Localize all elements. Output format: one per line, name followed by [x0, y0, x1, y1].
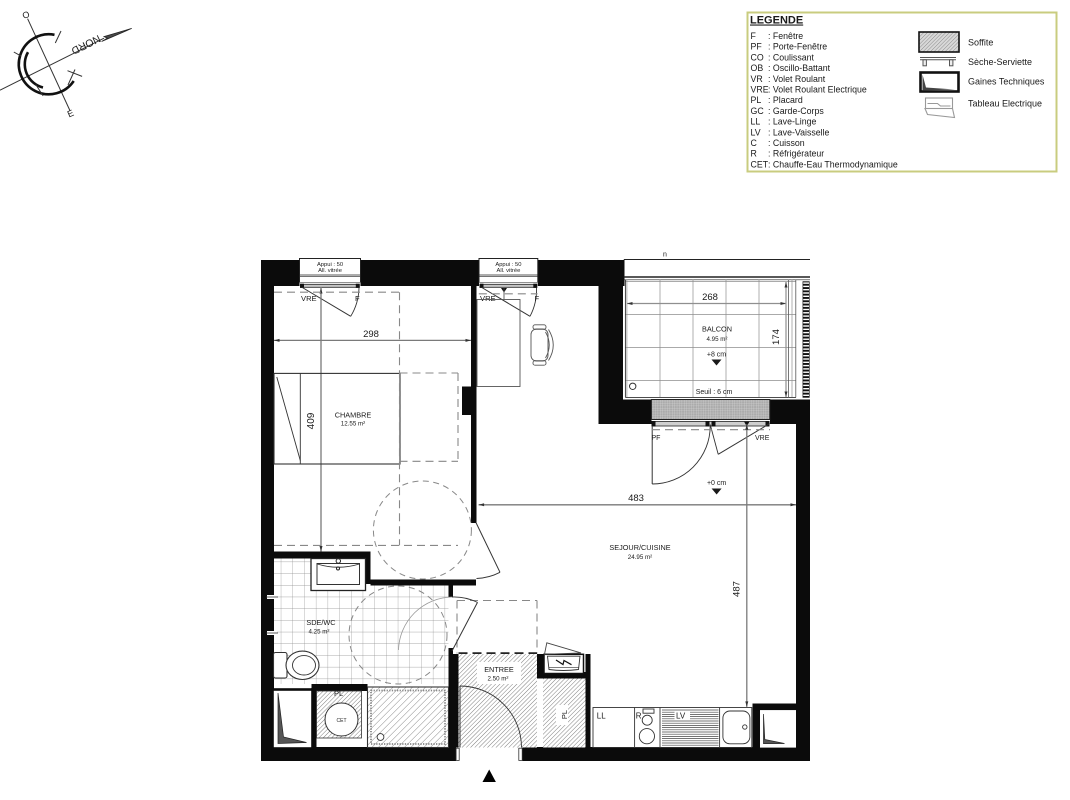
svg-text:: Volet Roulant Electrique: : Volet Roulant Electrique	[768, 85, 867, 95]
svg-text:: Porte-Fenêtre: : Porte-Fenêtre	[768, 42, 827, 52]
svg-text:F: F	[355, 294, 360, 303]
svg-text:: Cuisson: : Cuisson	[768, 138, 805, 148]
svg-text:Gaines Techniques: Gaines Techniques	[968, 77, 1045, 87]
svg-text:R: R	[636, 712, 642, 721]
svg-text:LEGENDE: LEGENDE	[750, 15, 803, 27]
svg-text:483: 483	[628, 493, 644, 504]
svg-text:VRE: VRE	[480, 294, 496, 303]
svg-text:CET: CET	[751, 159, 769, 169]
svg-text:2.50 m²: 2.50 m²	[488, 676, 509, 683]
svg-text:SEJOUR/CUISINE: SEJOUR/CUISINE	[609, 543, 670, 552]
svg-text:: Volet Roulant: : Volet Roulant	[768, 74, 826, 84]
svg-text:: Garde-Corps: : Garde-Corps	[768, 106, 824, 116]
svg-text:All. vitrée: All. vitrée	[496, 268, 520, 274]
svg-text:LV: LV	[751, 127, 761, 137]
svg-text:F: F	[751, 31, 757, 41]
svg-text:: Oscillo-Battant: : Oscillo-Battant	[768, 63, 831, 73]
svg-text:LL: LL	[597, 712, 606, 721]
svg-text:VR: VR	[751, 74, 763, 84]
svg-text:PL: PL	[334, 689, 343, 698]
svg-text:: Lave-Vaisselle: : Lave-Vaisselle	[768, 127, 830, 137]
svg-text:: Coulissant: : Coulissant	[768, 52, 815, 62]
svg-text:12.55 m²: 12.55 m²	[341, 421, 365, 428]
svg-text:268: 268	[702, 292, 718, 303]
svg-text:: Placard: : Placard	[768, 95, 803, 105]
svg-text:VRE: VRE	[755, 435, 770, 442]
svg-text:n: n	[663, 252, 667, 259]
svg-text:PF: PF	[652, 435, 661, 442]
svg-text:409: 409	[306, 412, 317, 429]
svg-text:Seuil : 6 cm: Seuil : 6 cm	[696, 389, 733, 396]
svg-text:F: F	[535, 294, 540, 303]
svg-text:CHAMBRE: CHAMBRE	[335, 411, 372, 420]
svg-text:PL: PL	[751, 95, 762, 105]
svg-text:ENTREE: ENTREE	[484, 665, 514, 674]
svg-text:+0 cm: +0 cm	[707, 480, 726, 487]
svg-text:VRE: VRE	[751, 85, 769, 95]
svg-text:GC: GC	[751, 106, 765, 116]
svg-text:LV: LV	[676, 712, 686, 721]
svg-text:C: C	[751, 138, 758, 148]
svg-text:: Réfrigérateur: : Réfrigérateur	[768, 149, 824, 159]
svg-text:4.25 m²: 4.25 m²	[309, 629, 330, 636]
svg-text:: Chauffe-Eau Thermodynamique: : Chauffe-Eau Thermodynamique	[768, 159, 898, 169]
svg-text:174: 174	[771, 329, 782, 345]
svg-text:Soffite: Soffite	[968, 38, 993, 48]
svg-text:VRE: VRE	[301, 294, 317, 303]
svg-text:487: 487	[732, 581, 743, 597]
svg-text:24.95 m²: 24.95 m²	[628, 554, 652, 561]
svg-text:CET: CET	[337, 718, 347, 724]
svg-text:298: 298	[363, 329, 379, 340]
svg-text:PL: PL	[560, 710, 569, 719]
svg-text:4.95 m²: 4.95 m²	[707, 336, 728, 343]
svg-text:Sèche-Serviette: Sèche-Serviette	[968, 57, 1032, 67]
svg-text:OB: OB	[751, 63, 764, 73]
svg-text:: Fenêtre: : Fenêtre	[768, 31, 803, 41]
svg-text:SDE/WC: SDE/WC	[306, 618, 335, 627]
svg-text:All. vitrée: All. vitrée	[318, 268, 342, 274]
svg-text:Tableau Electrique: Tableau Electrique	[968, 99, 1042, 109]
svg-text:+8 cm: +8 cm	[707, 352, 726, 359]
svg-text:LL: LL	[751, 117, 761, 127]
svg-text:R: R	[751, 149, 757, 159]
svg-text:PF: PF	[751, 42, 763, 52]
svg-text:: Lave-Linge: : Lave-Linge	[768, 117, 817, 127]
svg-text:BALCON: BALCON	[702, 325, 732, 334]
svg-text:CO: CO	[751, 52, 764, 62]
